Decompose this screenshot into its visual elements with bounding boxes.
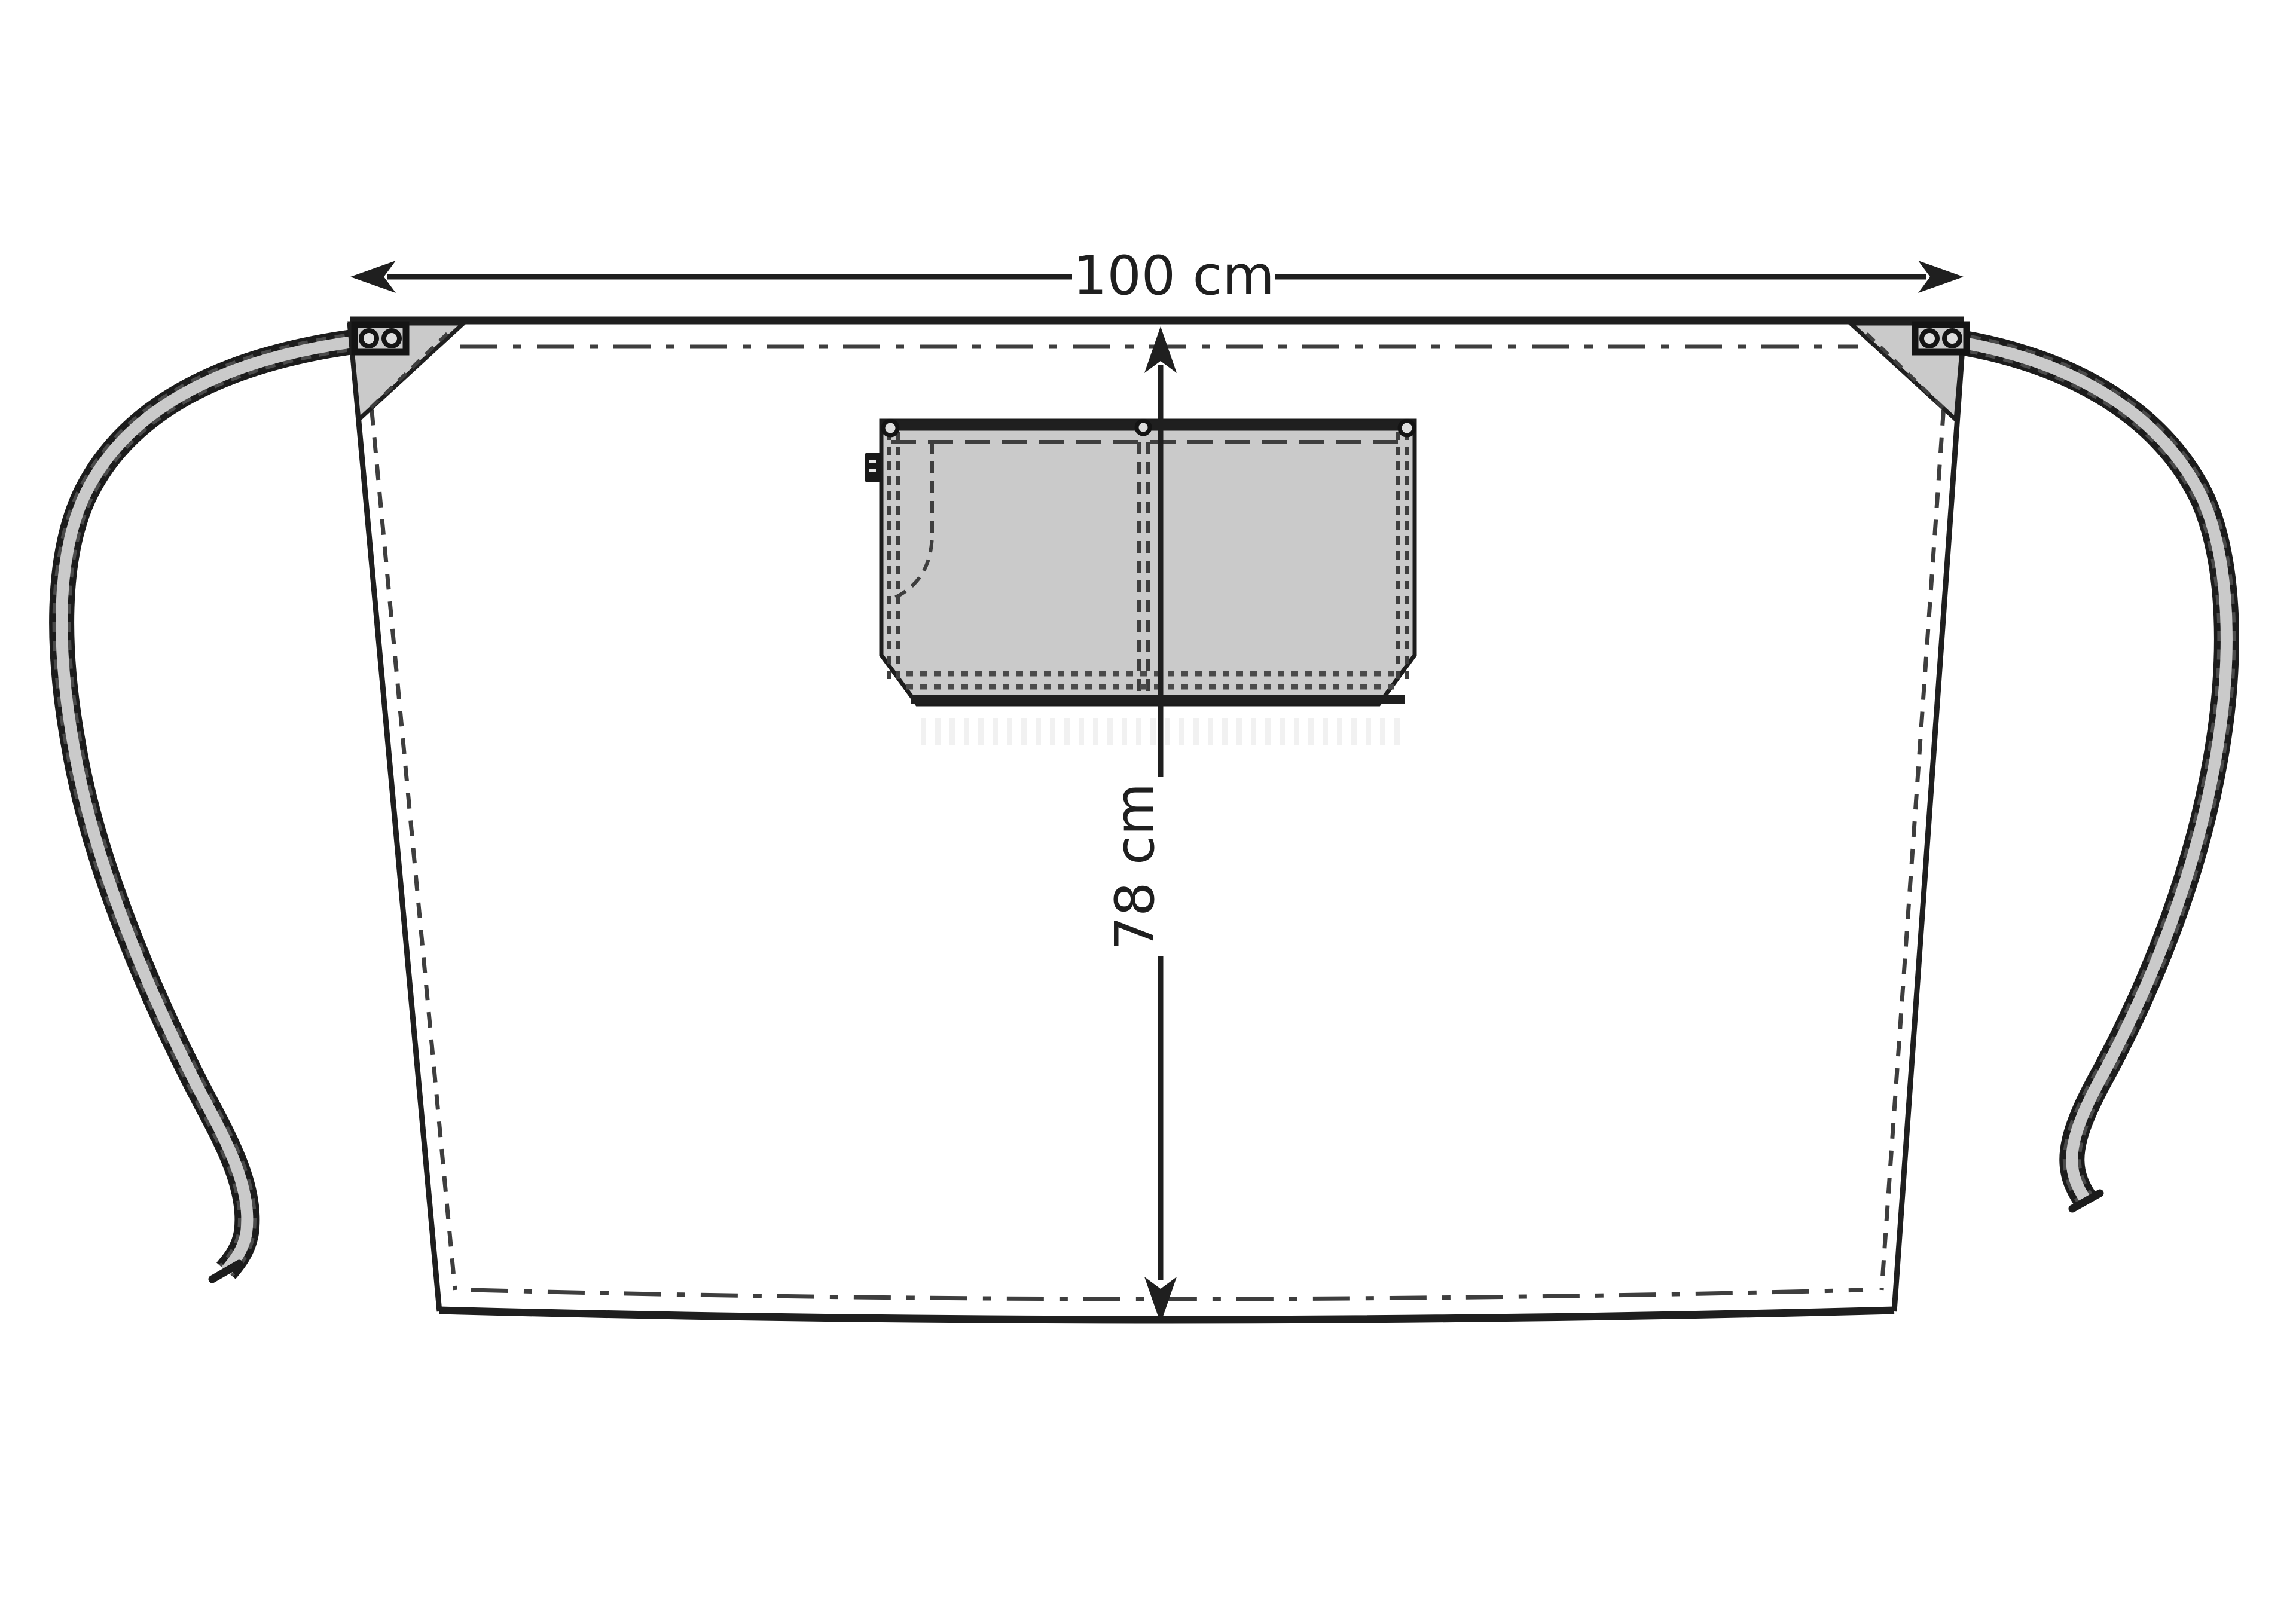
rivet-icon — [1944, 331, 1960, 346]
apron-technical-drawing: 100 cm 78 cm — [0, 0, 2296, 1605]
rivet-icon — [1922, 331, 1937, 346]
rivet-icon — [361, 331, 377, 346]
rivet-icon — [384, 331, 399, 346]
height-dimension-label: 78 cm — [1104, 783, 1167, 950]
pocket-rivet-icon — [1400, 421, 1414, 435]
pocket-rivet-icon — [883, 421, 897, 435]
front-pocket — [865, 421, 1415, 704]
waist-tie-left — [62, 338, 383, 1279]
waist-tie-left-fabric — [62, 338, 383, 1271]
width-dimension: 100 cm — [350, 244, 1964, 307]
brand-tag-body — [865, 453, 881, 482]
brand-tag-mark — [869, 460, 876, 463]
brand-tag — [865, 453, 881, 482]
waist-tie-right — [1932, 338, 2227, 1209]
pocket-rivet-icon — [1137, 421, 1150, 434]
apron-diagram: 100 cm 78 cm — [0, 0, 2296, 1605]
width-dimension-label: 100 cm — [1073, 244, 1275, 307]
waist-tie-right-fabric — [1932, 338, 2227, 1201]
brand-tag-mark — [869, 469, 876, 472]
